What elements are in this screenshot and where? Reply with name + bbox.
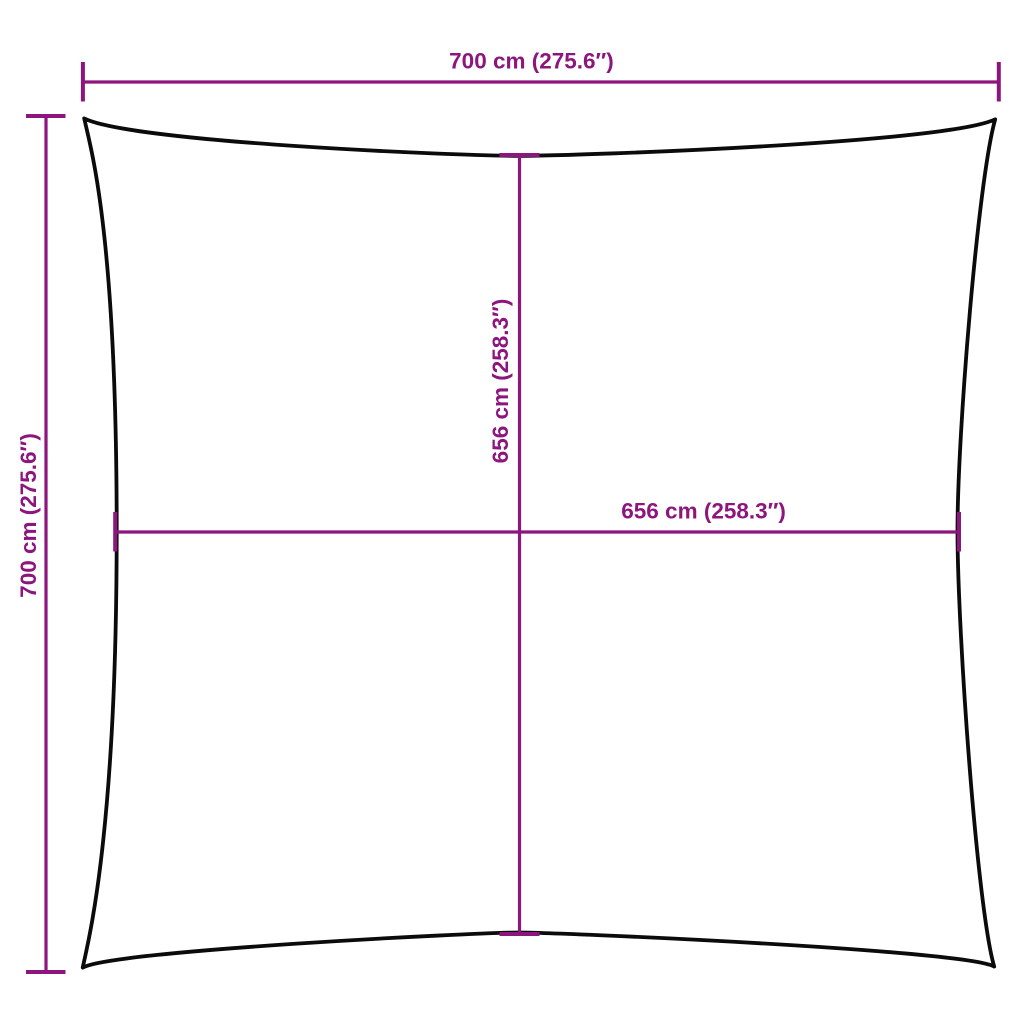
svg-text:700 cm (275.6″): 700 cm (275.6″): [449, 49, 614, 74]
svg-text:700 cm (275.6″): 700 cm (275.6″): [16, 433, 41, 598]
svg-text:656 cm (258.3″): 656 cm (258.3″): [621, 499, 786, 524]
svg-text:656 cm (258.3″): 656 cm (258.3″): [488, 299, 513, 464]
